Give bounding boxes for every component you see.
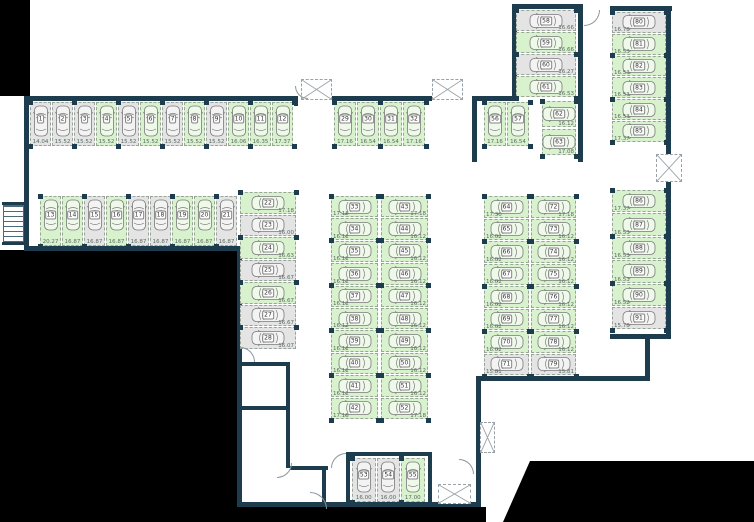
column-dot: [379, 238, 384, 243]
space-number: 31: [385, 114, 397, 123]
parking-space-52[interactable]: 5217.18: [381, 398, 428, 419]
space-number: 7: [169, 114, 177, 123]
column-dot: [204, 100, 209, 105]
column-dot: [664, 140, 669, 145]
parking-space-54[interactable]: 5416.00: [377, 458, 401, 502]
door-arc: [240, 347, 255, 362]
parking-space-6[interactable]: 615.52: [140, 102, 161, 146]
door-arc: [277, 463, 292, 478]
space-number: 24: [262, 243, 274, 252]
space-number: 27: [262, 311, 274, 320]
column-dot: [350, 500, 355, 505]
column-dot: [28, 100, 33, 105]
space-area: 16.63: [278, 253, 294, 259]
space-area: 15.81: [486, 369, 502, 375]
parking-space-55[interactable]: 5517.00: [401, 458, 425, 502]
parking-space-16[interactable]: 1616.87: [106, 196, 127, 246]
parking-space-26[interactable]: 2616.67: [240, 282, 296, 304]
space-area: 15.52: [75, 139, 94, 145]
space-number: 80: [633, 18, 645, 27]
space-number: 51: [399, 381, 411, 390]
parking-space-72[interactable]: 7217.18: [531, 196, 576, 218]
wall-segment: [24, 96, 29, 249]
space-number: 14: [67, 211, 79, 220]
space-area: 16.67: [278, 320, 294, 326]
column-dot: [610, 281, 615, 286]
column-dot: [482, 194, 487, 199]
parking-space-89[interactable]: 8916.53: [612, 260, 666, 282]
parking-space-60[interactable]: 6016.27: [516, 54, 576, 75]
space-number: 58: [540, 16, 552, 25]
space-area: 17.08: [558, 149, 574, 155]
space-number: 17: [133, 211, 145, 220]
space-number: 62: [553, 110, 565, 119]
space-area: 17.16: [404, 139, 424, 145]
parking-space-48[interactable]: 4816.12: [381, 308, 428, 329]
space-area: 16.02: [486, 257, 502, 263]
wall-segment: [286, 406, 290, 468]
column-dot: [664, 10, 669, 15]
column-dot: [204, 144, 209, 149]
parking-space-31[interactable]: 3116.54: [380, 102, 402, 146]
space-number: 5: [125, 114, 133, 123]
parking-space-23[interactable]: 2316.00: [240, 215, 296, 237]
column-dot: [529, 329, 534, 334]
parking-space-15[interactable]: 1516.87: [84, 196, 105, 246]
parking-space-4[interactable]: 415.52: [96, 102, 117, 146]
parking-space-32[interactable]: 3217.16: [403, 102, 425, 146]
space-area: 15.52: [207, 139, 226, 145]
parking-space-13[interactable]: 1320.27: [40, 196, 61, 246]
space-number: 74: [548, 247, 560, 256]
parking-space-74[interactable]: 7416.12: [531, 241, 576, 263]
space-number: 40: [349, 359, 361, 368]
parking-space-12[interactable]: 1217.37: [272, 102, 293, 146]
parking-space-20[interactable]: 2016.87: [194, 196, 215, 246]
parking-space-90[interactable]: 9016.52: [612, 284, 666, 306]
parking-space-14[interactable]: 1416.87: [62, 196, 83, 246]
parking-space-51[interactable]: 5116.12: [381, 375, 428, 396]
wall-segment: [24, 246, 242, 251]
column-dot: [378, 100, 383, 105]
column-dot: [610, 53, 615, 58]
parking-space-84[interactable]: 8416.53: [612, 99, 666, 120]
parking-space-33[interactable]: 3317.18: [331, 196, 378, 217]
space-area: 16.12: [333, 234, 349, 240]
space-area: 16.54: [508, 139, 528, 145]
parking-space-86[interactable]: 8617.37: [612, 190, 666, 212]
column-dot: [514, 96, 519, 101]
column-dot: [238, 190, 243, 195]
space-number: 91: [633, 314, 645, 323]
column-dot: [574, 8, 579, 13]
column-dot: [424, 144, 429, 149]
space-number: 89: [633, 267, 645, 276]
parking-space-25[interactable]: 2516.67: [240, 260, 296, 282]
column-dot: [238, 280, 243, 285]
space-area: 17.30: [486, 212, 502, 218]
cutoff-region: [0, 250, 237, 522]
column-dot: [329, 373, 334, 378]
space-number: 86: [633, 197, 645, 206]
column-dot: [329, 328, 334, 333]
parking-space-37[interactable]: 3716.12: [331, 286, 378, 307]
space-number: 88: [633, 243, 645, 252]
column-dot: [38, 194, 43, 199]
parking-space-2[interactable]: 215.52: [52, 102, 73, 146]
space-area: 16.00: [278, 230, 294, 236]
parking-space-81[interactable]: 8116.53: [612, 34, 666, 55]
parking-space-24[interactable]: 2416.63: [240, 237, 296, 259]
parking-space-49[interactable]: 4916.12: [381, 330, 428, 351]
space-area: 16.12: [333, 256, 349, 262]
wall-segment: [480, 376, 650, 381]
column-dot: [294, 190, 299, 195]
column-dot: [248, 144, 253, 149]
column-dot: [482, 100, 487, 105]
parking-space-38[interactable]: 3816.12: [331, 308, 378, 329]
space-number: 26: [262, 288, 274, 297]
space-area: 16.12: [410, 256, 426, 262]
parking-space-82[interactable]: 8216.53: [612, 56, 666, 77]
space-area: 16.12: [410, 391, 426, 397]
space-area: 16.02: [486, 279, 502, 285]
space-area: 16.02: [486, 234, 502, 240]
parking-space-5[interactable]: 515.52: [118, 102, 139, 146]
space-number: 61: [540, 82, 552, 91]
column-dot: [610, 234, 615, 239]
space-area: 16.54: [358, 139, 378, 145]
column-dot: [574, 194, 579, 199]
space-area: 16.53: [614, 253, 630, 259]
door-arc: [331, 453, 346, 468]
column-dot: [610, 10, 615, 15]
space-number: 49: [399, 337, 411, 346]
column-dot: [529, 374, 534, 379]
parking-space-69[interactable]: 6916.02: [484, 309, 529, 331]
column-dot: [514, 8, 519, 13]
column-dot: [426, 328, 431, 333]
parking-space-30[interactable]: 3016.54: [357, 102, 379, 146]
wall-segment: [512, 4, 583, 9]
column-dot: [329, 418, 334, 423]
space-number: 11: [255, 114, 267, 123]
parking-space-7[interactable]: 715.52: [162, 102, 183, 146]
parking-space-10[interactable]: 1016.06: [228, 102, 249, 146]
parking-space-77[interactable]: 7716.12: [531, 309, 576, 331]
space-number: 15: [89, 211, 101, 220]
space-area: 17.37: [614, 206, 630, 212]
parking-space-62[interactable]: 6216.12: [542, 101, 576, 127]
space-area: 16.87: [173, 239, 192, 245]
space-area: 17.00: [402, 495, 424, 501]
space-area: 16.12: [410, 234, 426, 240]
parking-space-11[interactable]: 1116.35: [250, 102, 271, 146]
space-area: 16.87: [85, 239, 104, 245]
column-dot: [610, 97, 615, 102]
space-number: 35: [349, 247, 361, 256]
space-number: 22: [262, 198, 274, 207]
space-area: 17.16: [485, 139, 505, 145]
space-number: 33: [349, 202, 361, 211]
stairs-icon: [3, 205, 24, 242]
column-dot: [72, 100, 77, 105]
parking-space-9[interactable]: 915.52: [206, 102, 227, 146]
space-area: 16.66: [558, 25, 574, 31]
space-number: 12: [277, 114, 289, 123]
column-dot: [514, 52, 519, 57]
column-dot: [160, 100, 165, 105]
column-dot: [399, 456, 404, 461]
space-number: 8: [191, 114, 199, 123]
cutoff-region: [237, 507, 486, 522]
space-area: 16.53: [614, 70, 630, 76]
space-number: 29: [339, 114, 351, 123]
parking-space-3[interactable]: 315.52: [74, 102, 95, 146]
wall-segment: [346, 452, 432, 456]
space-number: 57: [512, 114, 524, 123]
parking-space-76[interactable]: 7616.12: [531, 286, 576, 308]
column-dot: [329, 283, 334, 288]
wall-segment: [286, 362, 290, 410]
space-area: 16.35: [251, 139, 270, 145]
parking-space-29[interactable]: 2917.16: [334, 102, 356, 146]
space-area: 16.53: [614, 230, 630, 236]
space-area: 16.67: [278, 298, 294, 304]
space-number: 25: [262, 266, 274, 275]
column-dot: [574, 99, 579, 104]
parking-space-67[interactable]: 6716.02: [484, 264, 529, 286]
column-dot: [664, 234, 669, 239]
space-number: 87: [633, 220, 645, 229]
column-dot: [664, 53, 669, 58]
parking-space-70[interactable]: 7016.02: [484, 331, 529, 353]
parking-space-78[interactable]: 7816.12: [531, 331, 576, 353]
column-dot: [529, 239, 534, 244]
parking-space-47[interactable]: 4716.12: [381, 286, 428, 307]
column-dot: [426, 194, 431, 199]
parking-space-73[interactable]: 7316.12: [531, 219, 576, 241]
door-arc: [584, 10, 600, 26]
parking-space-27[interactable]: 2716.67: [240, 305, 296, 327]
space-number: 16: [111, 211, 123, 220]
column-dot: [574, 284, 579, 289]
column-dot: [540, 154, 545, 159]
parking-space-83[interactable]: 8316.53: [612, 77, 666, 98]
space-number: 70: [501, 337, 513, 346]
door-arc: [459, 459, 474, 474]
space-number: 68: [501, 292, 513, 301]
column-dot: [610, 140, 615, 145]
parking-space-58[interactable]: 5816.66: [516, 10, 576, 31]
column-dot: [378, 144, 383, 149]
column-dot: [126, 194, 131, 199]
parking-space-56[interactable]: 5617.16: [484, 102, 506, 146]
space-area: 17.37: [614, 136, 630, 142]
vent-shaft-symbol: [432, 79, 463, 100]
space-number: 75: [548, 270, 560, 279]
space-number: 46: [399, 269, 411, 278]
column-dot: [379, 373, 384, 378]
space-area: 15.52: [141, 139, 160, 145]
wall-segment: [237, 362, 290, 366]
parking-space-53[interactable]: 5316.00: [352, 458, 376, 502]
wall-segment: [472, 96, 477, 162]
column-dot: [379, 283, 384, 288]
space-area: 16.12: [333, 346, 349, 352]
space-number: 71: [501, 360, 513, 369]
column-dot: [238, 235, 243, 240]
parking-space-17[interactable]: 1716.87: [128, 196, 149, 246]
space-number: 30: [362, 114, 374, 123]
parking-space-19[interactable]: 1916.87: [172, 196, 193, 246]
wall-segment: [578, 4, 583, 162]
parking-space-50[interactable]: 5016.12: [381, 353, 428, 374]
space-number: 19: [177, 211, 189, 220]
column-dot: [529, 194, 534, 199]
vent-shaft-symbol: [480, 422, 495, 453]
wall-segment: [645, 334, 650, 381]
space-number: 77: [548, 315, 560, 324]
space-number: 81: [633, 40, 645, 49]
column-dot: [529, 284, 534, 289]
space-area: 16.02: [486, 302, 502, 308]
parking-space-28[interactable]: 2816.07: [240, 327, 296, 349]
space-area: 16.87: [195, 239, 214, 245]
space-area: 17.18: [410, 413, 426, 419]
parking-space-36[interactable]: 3616.12: [331, 263, 378, 284]
column-dot: [292, 100, 297, 105]
space-area: 16.12: [410, 346, 426, 352]
parking-space-1[interactable]: 114.04: [30, 102, 51, 146]
space-area: 16.53: [614, 277, 630, 283]
space-area: 16.00: [353, 495, 375, 501]
column-dot: [160, 144, 165, 149]
space-area: 20.27: [41, 239, 60, 245]
parking-space-68[interactable]: 6816.02: [484, 286, 529, 308]
space-number: 76: [548, 292, 560, 301]
space-number: 13: [45, 211, 57, 220]
parking-space-45[interactable]: 4516.12: [381, 241, 428, 262]
column-dot: [424, 100, 429, 105]
space-area: 16.12: [558, 234, 574, 240]
space-area: 17.18: [333, 211, 349, 217]
parking-space-61[interactable]: 6116.53: [516, 76, 576, 97]
parking-space-66[interactable]: 6616.02: [484, 241, 529, 263]
parking-space-41[interactable]: 4116.12: [331, 375, 378, 396]
space-number: 44: [399, 225, 411, 234]
column-dot: [574, 329, 579, 334]
parking-space-88[interactable]: 8816.53: [612, 237, 666, 259]
parking-space-40[interactable]: 4016.12: [331, 353, 378, 374]
space-area: 15.52: [185, 139, 204, 145]
wall-segment: [2, 242, 24, 245]
column-dot: [664, 328, 669, 333]
parking-space-59[interactable]: 5916.66: [516, 32, 576, 53]
space-number: 50: [399, 359, 411, 368]
space-area: 16.87: [107, 239, 126, 245]
space-area: 16.00: [378, 495, 400, 501]
column-dot: [426, 238, 431, 243]
space-number: 37: [349, 292, 361, 301]
space-number: 28: [262, 333, 274, 342]
space-number: 48: [399, 314, 411, 323]
parking-space-85[interactable]: 8517.37: [612, 121, 666, 142]
column-dot: [294, 280, 299, 285]
space-number: 59: [540, 38, 552, 47]
parking-space-80[interactable]: 8016.78: [612, 12, 666, 33]
parking-space-22[interactable]: 2217.18: [240, 192, 296, 214]
space-area: 16.02: [486, 347, 502, 353]
parking-space-71[interactable]: 7115.81: [484, 354, 529, 376]
column-dot: [574, 154, 579, 159]
parking-space-35[interactable]: 3516.12: [331, 241, 378, 262]
space-area: 16.87: [63, 239, 82, 245]
space-area: 16.06: [229, 139, 248, 145]
column-dot: [350, 456, 355, 461]
parking-space-65[interactable]: 6516.02: [484, 219, 529, 241]
column-dot: [664, 97, 669, 102]
space-area: 16.67: [278, 275, 294, 281]
column-dot: [482, 374, 487, 379]
space-area: 16.12: [410, 279, 426, 285]
space-number: 85: [633, 127, 645, 136]
parking-space-18[interactable]: 1816.87: [150, 196, 171, 246]
column-dot: [82, 244, 87, 249]
parking-space-39[interactable]: 3916.12: [331, 330, 378, 351]
space-area: 16.87: [151, 239, 170, 245]
space-area: 16.53: [614, 49, 630, 55]
column-dot: [248, 100, 253, 105]
parking-space-44[interactable]: 4416.12: [381, 218, 428, 239]
space-area: 16.12: [333, 391, 349, 397]
parking-space-91[interactable]: 9115.78: [612, 307, 666, 329]
column-dot: [610, 188, 615, 193]
column-dot: [528, 144, 533, 149]
column-dot: [332, 144, 337, 149]
parking-space-8[interactable]: 815.52: [184, 102, 205, 146]
space-area: 15.81: [558, 369, 574, 375]
space-number: 55: [407, 470, 419, 479]
column-dot: [610, 328, 615, 333]
space-number: 53: [358, 470, 370, 479]
column-dot: [426, 373, 431, 378]
parking-space-42[interactable]: 4217.18: [331, 398, 378, 419]
parking-space-43[interactable]: 4317.18: [381, 196, 428, 217]
column-dot: [214, 244, 219, 249]
parking-space-21[interactable]: 2116.87: [216, 196, 237, 246]
space-number: 90: [633, 290, 645, 299]
space-number: 34: [349, 225, 361, 234]
parking-space-87[interactable]: 8716.53: [612, 213, 666, 235]
column-dot: [170, 194, 175, 199]
parking-space-34[interactable]: 3416.12: [331, 218, 378, 239]
column-dot: [399, 500, 404, 505]
parking-space-63[interactable]: 6317.08: [542, 129, 576, 155]
column-dot: [574, 239, 579, 244]
space-area: 17.18: [558, 212, 574, 218]
parking-space-57[interactable]: 5716.54: [507, 102, 529, 146]
parking-space-64[interactable]: 6417.30: [484, 196, 529, 218]
space-number: 39: [349, 337, 361, 346]
parking-space-75[interactable]: 7516.12: [531, 264, 576, 286]
space-area: 16.12: [558, 324, 574, 330]
parking-space-46[interactable]: 4616.12: [381, 263, 428, 284]
space-number: 63: [553, 137, 565, 146]
space-number: 83: [633, 83, 645, 92]
space-area: 16.53: [614, 114, 630, 120]
parking-space-79[interactable]: 7915.81: [531, 354, 576, 376]
